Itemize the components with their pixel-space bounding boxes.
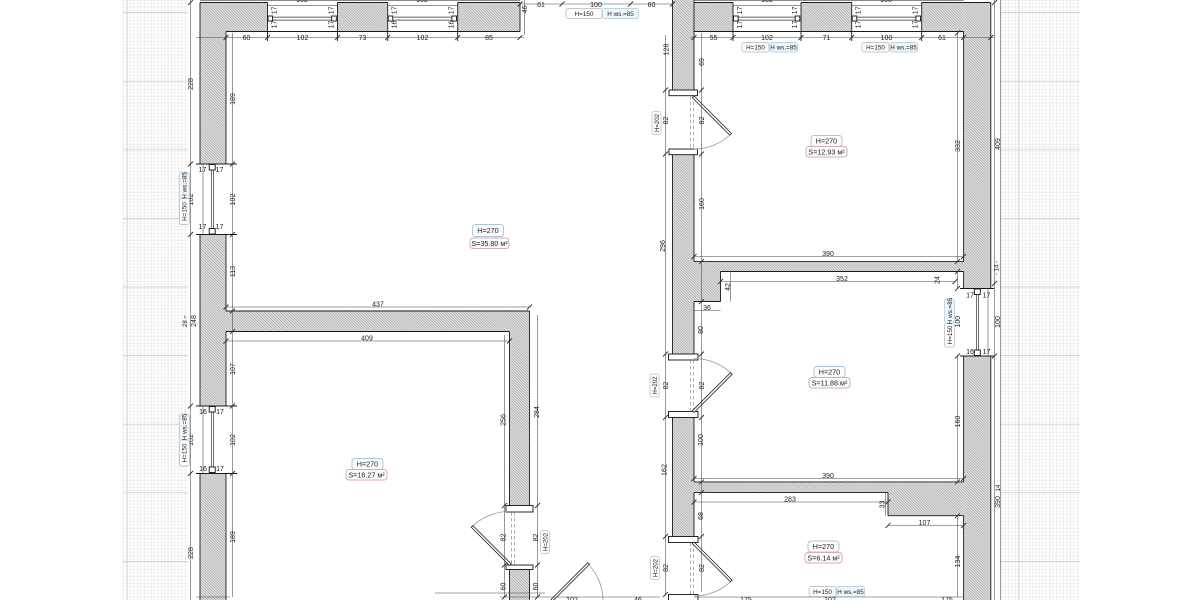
svg-text:296: 296	[660, 240, 667, 252]
svg-text:17: 17	[792, 6, 799, 14]
svg-text:82: 82	[699, 382, 706, 390]
svg-text:17: 17	[913, 6, 920, 14]
svg-text:437: 437	[372, 302, 384, 309]
svg-text:71: 71	[823, 35, 831, 42]
svg-text:68: 68	[698, 512, 705, 520]
svg-text:284: 284	[534, 406, 541, 418]
svg-text:128: 128	[664, 44, 671, 56]
svg-text:85: 85	[485, 35, 493, 42]
svg-text:160: 160	[955, 416, 962, 428]
svg-text:H=202: H=202	[655, 113, 661, 132]
svg-text:H=150: H=150	[947, 325, 954, 344]
svg-text:S=16.27 м²: S=16.27 м²	[348, 470, 385, 479]
svg-text:100: 100	[995, 316, 1002, 328]
svg-text:H=150: H=150	[866, 45, 885, 52]
svg-text:H ws.=85: H ws.=85	[837, 589, 864, 596]
svg-text:17: 17	[856, 21, 863, 29]
svg-text:17: 17	[329, 6, 336, 14]
svg-text:28 ⌐: 28 ⌐	[182, 315, 189, 328]
svg-text:256: 256	[501, 414, 508, 426]
svg-text:16: 16	[199, 409, 207, 416]
svg-text:17: 17	[737, 6, 744, 14]
svg-text:82: 82	[533, 534, 540, 542]
svg-text:390: 390	[822, 251, 834, 258]
svg-text:H=270: H=270	[819, 368, 840, 377]
svg-text:H=150: H=150	[182, 443, 189, 462]
svg-text:390: 390	[822, 473, 834, 480]
svg-text:H=150: H=150	[813, 589, 832, 596]
svg-text:H=270: H=270	[477, 226, 498, 235]
svg-text:113: 113	[230, 266, 237, 277]
svg-text:17: 17	[216, 167, 224, 174]
svg-text:H=202: H=202	[654, 558, 660, 577]
svg-text:H ws.=85: H ws.=85	[770, 45, 797, 52]
svg-text:H=202: H=202	[653, 376, 659, 395]
svg-text:17: 17	[792, 21, 799, 29]
svg-text:17: 17	[272, 21, 279, 29]
svg-text:162: 162	[662, 464, 669, 476]
svg-text:H ws.=85: H ws.=85	[890, 45, 917, 52]
svg-text:189: 189	[230, 531, 237, 543]
svg-text:H=202: H=202	[544, 532, 550, 551]
svg-text:61: 61	[938, 35, 946, 42]
svg-text:82: 82	[663, 382, 670, 390]
svg-text:17: 17	[199, 224, 207, 231]
svg-text:H ws.=85: H ws.=85	[947, 297, 954, 324]
svg-text:60: 60	[243, 35, 251, 42]
svg-text:102: 102	[761, 35, 773, 42]
svg-text:102: 102	[230, 194, 237, 206]
svg-text:17: 17	[449, 6, 456, 14]
svg-text:107: 107	[230, 363, 237, 375]
svg-text:17: 17	[913, 21, 920, 29]
svg-text:82: 82	[501, 534, 508, 542]
svg-text:248: 248	[191, 315, 198, 327]
svg-text:H=270: H=270	[357, 460, 378, 469]
svg-text:82: 82	[699, 117, 706, 125]
svg-text:189: 189	[230, 93, 237, 105]
svg-text:60: 60	[501, 583, 508, 591]
svg-text:17: 17	[856, 6, 863, 14]
svg-text:33: 33	[880, 501, 887, 509]
svg-text:283: 283	[784, 497, 796, 504]
svg-text:100: 100	[881, 35, 893, 42]
svg-text:H ws.=85: H ws.=85	[182, 413, 189, 440]
svg-text:82: 82	[663, 117, 670, 125]
svg-text:36: 36	[703, 305, 711, 312]
svg-text:61: 61	[537, 2, 545, 9]
svg-text:17: 17	[216, 409, 224, 416]
svg-text:102: 102	[296, 0, 308, 4]
svg-text:17: 17	[966, 293, 974, 300]
svg-text:S=35.80 м²: S=35.80 м²	[471, 239, 508, 248]
svg-text:409: 409	[361, 336, 373, 343]
svg-text:73: 73	[359, 35, 367, 42]
svg-text:100: 100	[590, 2, 602, 9]
svg-text:134: 134	[955, 556, 962, 568]
svg-text:17: 17	[329, 21, 336, 29]
svg-text:H=150: H=150	[575, 11, 594, 18]
svg-text:69: 69	[699, 58, 706, 66]
svg-text:46: 46	[522, 5, 529, 13]
svg-text:S=6.14 м²: S=6.14 м²	[807, 553, 840, 562]
svg-text:228: 228	[188, 547, 195, 559]
svg-text:H=270: H=270	[816, 137, 837, 146]
svg-text:24: 24	[935, 276, 942, 284]
svg-text:100: 100	[955, 316, 962, 328]
svg-text:107: 107	[919, 520, 931, 527]
svg-text:102: 102	[416, 0, 428, 4]
svg-text:H=150: H=150	[746, 45, 765, 52]
svg-text:17: 17	[216, 466, 224, 473]
svg-text:17: 17	[272, 6, 279, 14]
svg-text:S=12.93 м²: S=12.93 м²	[808, 147, 845, 156]
svg-text:55: 55	[710, 35, 718, 42]
svg-text:102: 102	[230, 434, 237, 446]
svg-text:17: 17	[983, 293, 991, 300]
svg-text:102: 102	[761, 0, 773, 4]
svg-text:82: 82	[663, 564, 670, 572]
svg-text:100: 100	[880, 0, 892, 4]
svg-text:352: 352	[836, 276, 848, 283]
svg-text:17: 17	[216, 224, 224, 231]
svg-text:16: 16	[199, 466, 207, 473]
svg-text:42: 42	[725, 283, 732, 291]
svg-text:17: 17	[983, 349, 991, 356]
svg-text:82: 82	[699, 564, 706, 572]
svg-text:17: 17	[199, 167, 207, 174]
svg-text:17: 17	[737, 21, 744, 29]
svg-text:409: 409	[995, 138, 1002, 150]
svg-text:H ws.=85: H ws.=85	[182, 172, 189, 199]
svg-text:60: 60	[533, 583, 540, 591]
svg-text:100: 100	[698, 434, 705, 446]
svg-text:H=150: H=150	[182, 202, 189, 221]
svg-text:390: 390	[995, 496, 1002, 508]
svg-text:S=11.88 м²: S=11.88 м²	[812, 378, 848, 387]
svg-text:- 14 -: - 14 -	[994, 261, 1001, 275]
svg-text:228: 228	[188, 78, 195, 90]
svg-text:14: 14	[995, 484, 1002, 491]
svg-text:16: 16	[449, 21, 456, 29]
svg-text:H=270: H=270	[813, 542, 834, 551]
svg-text:17: 17	[392, 6, 399, 14]
svg-text:332: 332	[955, 140, 962, 152]
svg-text:102: 102	[297, 35, 309, 42]
svg-text:80: 80	[698, 326, 705, 334]
svg-text:16: 16	[966, 349, 974, 356]
svg-text:160: 160	[699, 198, 706, 210]
svg-text:102: 102	[417, 35, 429, 42]
svg-text:60: 60	[648, 2, 656, 9]
svg-text:H ws.=85: H ws.=85	[607, 11, 634, 18]
svg-text:16: 16	[392, 21, 399, 29]
